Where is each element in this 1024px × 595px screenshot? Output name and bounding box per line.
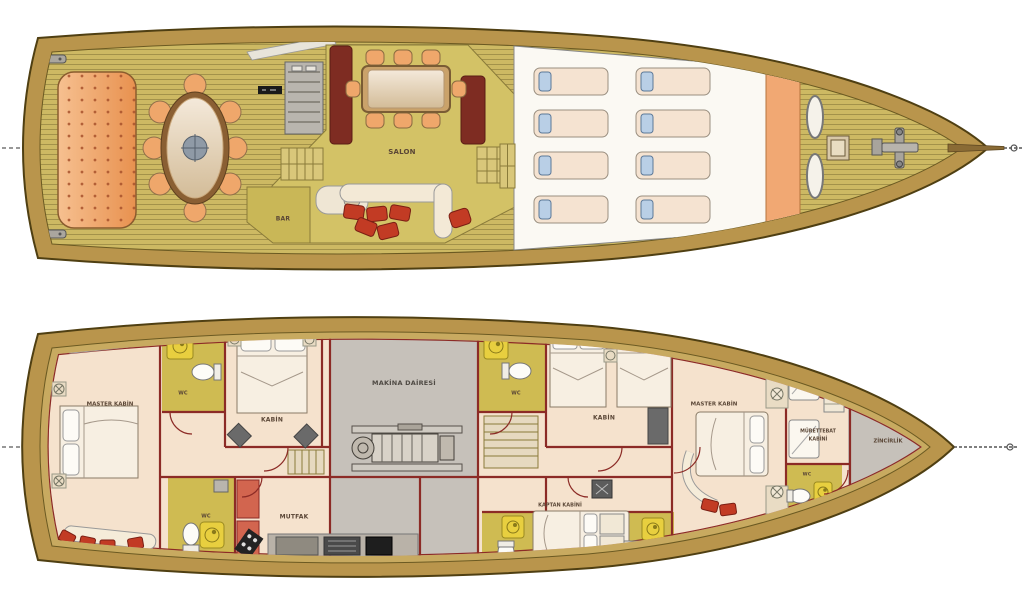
bow-sun-pad [766,58,800,240]
upper-deck-plan: SALON BAR [2,27,1022,270]
bow-line-lower [954,444,1018,450]
toilet-icon [183,523,199,545]
ceiling-vent-icon [771,486,783,498]
stairs-mid [484,416,538,468]
helm-console [285,62,323,134]
toilet-icon [192,364,214,380]
engine-room-label: MAKİNA DAİRESİ [372,378,436,387]
toilet-icon [509,363,531,379]
yacht-deck-plan: SALON BAR [0,0,1024,595]
chain-locker-label: ZİNCİRLİK [873,438,903,445]
cushion [883,354,903,374]
ceiling-vent-icon [771,388,783,400]
cabin-aft-label: KABİN [261,417,283,424]
captain-cabin-label: KAPTAN KABİNİ [538,502,582,509]
salon-label: SALON [388,148,415,156]
master-cabin-aft-label: MASTER KABİN [87,401,134,408]
wc-mid-label: WC [511,391,521,397]
wc-aft-label: WC [178,391,188,397]
stairs-galley [288,450,324,474]
deck-plan-drawing: SALON BAR [0,0,1024,595]
lower-deck-plan: MASTER KABİN WC KABİN [2,312,1018,580]
wc-crew-label: WC [803,472,812,478]
cabin-fwd-label: KABİN [593,415,615,422]
stairs-port [281,148,323,180]
ceiling-vent-icon [52,474,66,488]
aft-sun-pad [58,72,136,228]
wc-galley [183,522,224,552]
locker-box [864,362,882,378]
wc-galley-label: WC [201,514,211,520]
bar-label: BAR [276,216,291,223]
master-cabin-fwd-label: MASTER KABİN [691,401,738,408]
engine-room [352,424,462,471]
skylight-hatch [500,144,515,188]
galley-label: MUTFAK [280,514,309,521]
instrument-panel [258,86,282,94]
crew-cabin-label-1: MÜRETTEBAT [800,428,837,435]
crew-cabin-label-2: KABİNİ [809,436,828,443]
ceiling-vent-icon [52,382,66,396]
ceiling-vent-icon [604,349,617,362]
